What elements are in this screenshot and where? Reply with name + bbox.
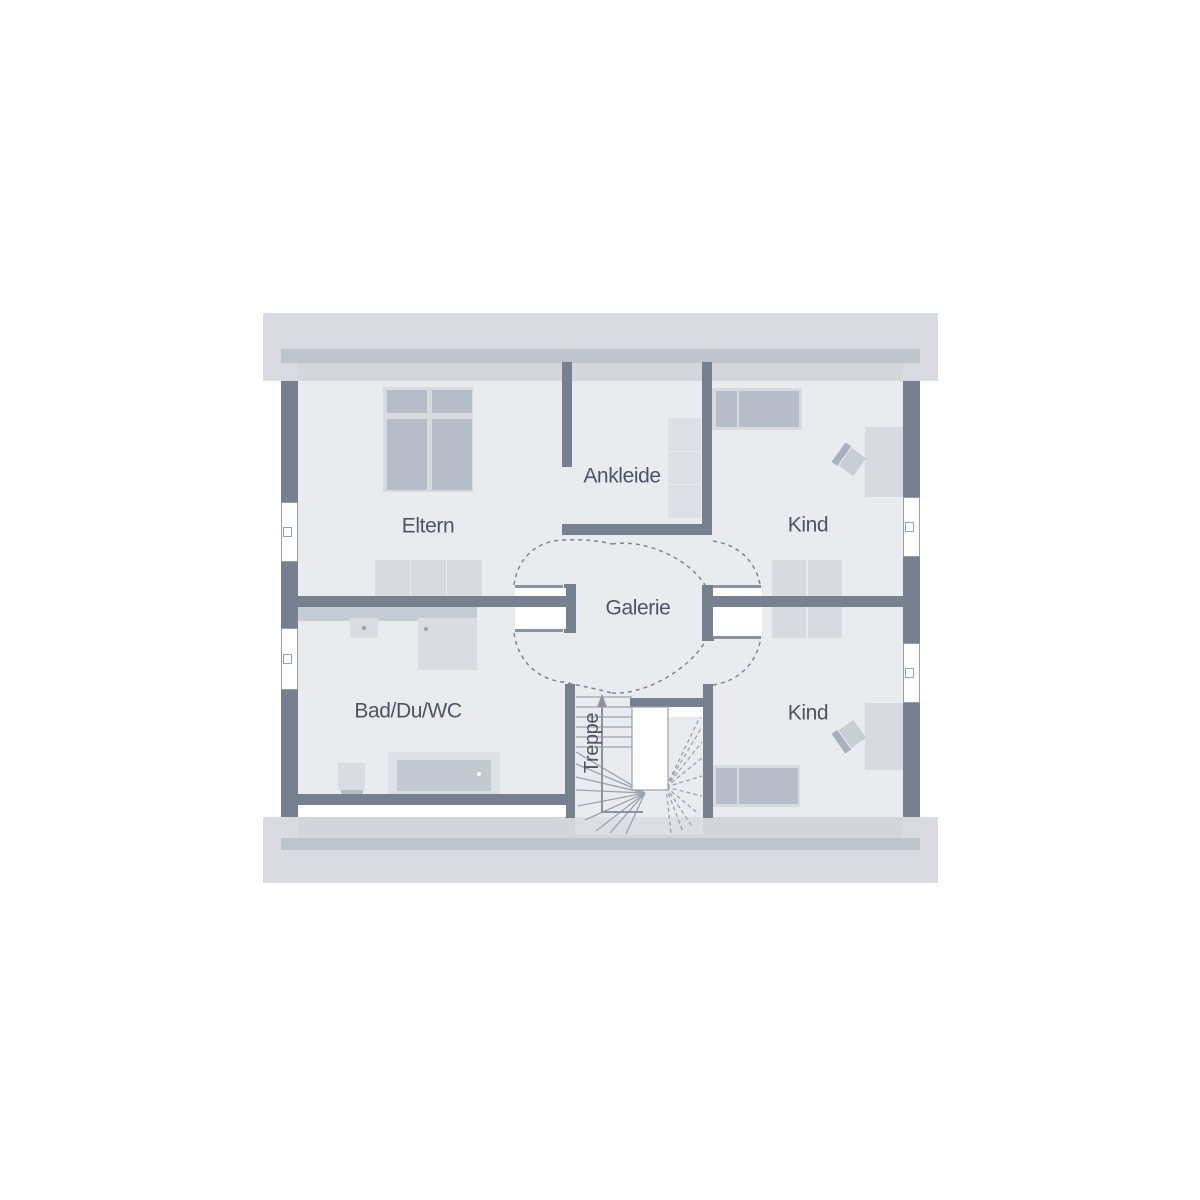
stair-up-arrow-icon <box>597 694 607 707</box>
room-label-treppe: Treppe <box>582 713 602 773</box>
door-swing-arc <box>612 642 705 693</box>
door-swing-arc <box>713 541 760 584</box>
door-swing-arc <box>514 633 612 693</box>
floor-plan-canvas: Eltern Ankleide Kind Galerie Bad/Du/WC K… <box>0 0 1200 1200</box>
door-swing-arc <box>612 543 705 585</box>
door-swing-arc <box>514 540 612 585</box>
room-label-galerie: Galerie <box>606 598 671 619</box>
room-label-bad: Bad/Du/WC <box>354 701 461 722</box>
room-label-ankleide: Ankleide <box>583 466 660 487</box>
room-label-eltern: Eltern <box>402 516 454 537</box>
room-label-kind-bottom: Kind <box>788 703 828 724</box>
room-label-kind-top: Kind <box>788 515 828 536</box>
door-swing-arc <box>713 642 760 685</box>
plan-linework <box>0 0 1200 1200</box>
stair-treads-dashed <box>666 713 702 834</box>
stair-void <box>632 707 668 790</box>
